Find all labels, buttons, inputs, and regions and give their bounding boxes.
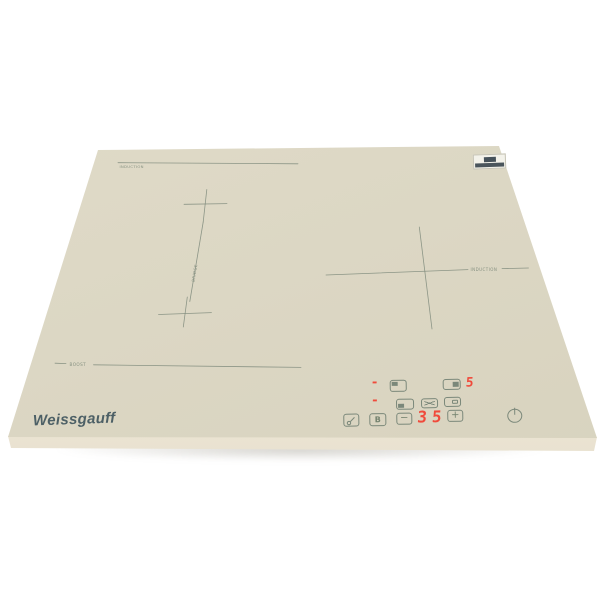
zone-rear-left-icon <box>390 380 407 392</box>
info-sticker <box>473 153 507 169</box>
front-left-indicator-led: - <box>370 394 379 407</box>
product-photo: INDUCTION BOOST BRIDGE INDUCTION Weissga… <box>0 0 600 600</box>
pause-inner-rect <box>452 400 458 404</box>
right-power-level-led: 5 <box>465 376 474 389</box>
zone-right-fill <box>453 382 459 387</box>
boost-button-icon: B <box>369 413 386 426</box>
boost-button-label: B <box>375 416 381 424</box>
brand-logo: Weissgauff <box>33 410 116 430</box>
key-glyph <box>345 414 357 426</box>
zone-front-left-icon <box>396 399 414 410</box>
minus-button-label: − <box>400 413 409 423</box>
main-display-led: 35 <box>417 409 448 426</box>
cooktop-glass-surface <box>0 0 600 600</box>
sticker-logo-mark <box>484 157 496 162</box>
rear-left-indicator-led: - <box>370 376 379 389</box>
plus-button-icon: + <box>447 410 463 422</box>
power-icon <box>507 409 522 423</box>
sticker-text-band <box>475 162 504 167</box>
zone-rear-left-fill <box>392 382 398 386</box>
touch-control-panel: - 5 - B − 35 <box>339 368 550 434</box>
power-line-glyph <box>514 408 516 415</box>
plus-button-label: + <box>451 410 460 420</box>
pause-icon <box>444 397 461 407</box>
minus-button-icon: − <box>396 413 412 425</box>
zone-right-icon <box>443 379 461 390</box>
bridge-x-mark <box>424 401 435 405</box>
zone-front-left-fill <box>398 404 404 408</box>
key-lock-icon <box>343 413 359 426</box>
